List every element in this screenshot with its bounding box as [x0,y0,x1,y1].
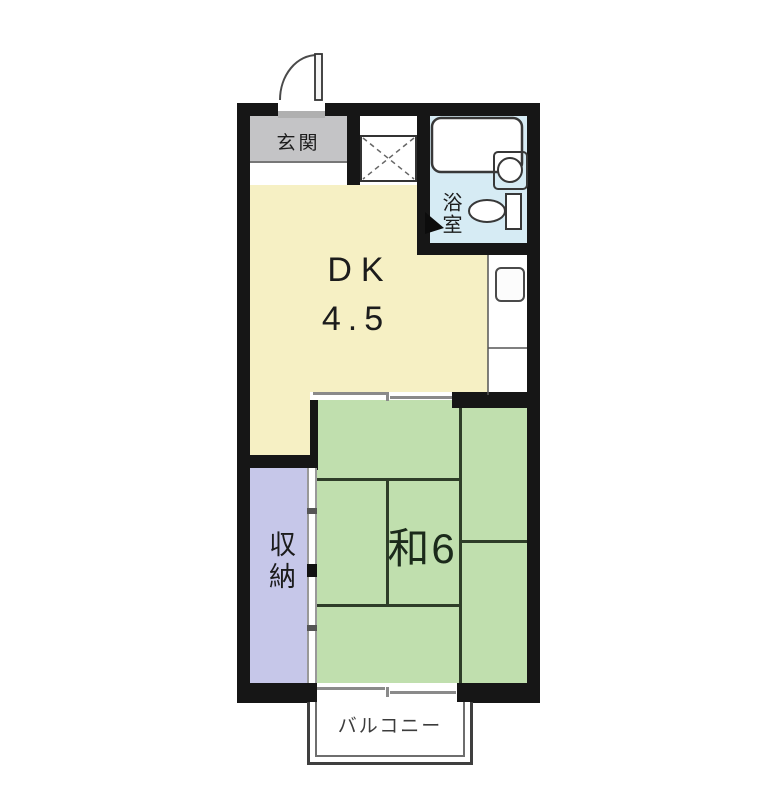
entrance-door-panel [315,54,322,100]
dk-label: DK [300,251,420,290]
floor-plan: 玄関 浴室 DK 4.5 和6 収納 バルコニー [0,0,766,800]
entrance-label: 玄関 [250,128,347,155]
balcony-sliding-door-left [317,687,385,690]
wall-entrance-utility [347,116,360,185]
entrance-threshold [278,111,325,118]
wall-dk-tatami-divider [310,400,318,470]
entrance-door-swing-arc [280,55,317,100]
wall-left [237,103,250,703]
dk-left-column [250,392,310,455]
wall-bathroom-left [417,116,430,243]
wall-storage-top [237,455,313,468]
balcony-sliding-door-right [390,691,456,694]
dk-size-label: 4.5 [288,300,424,339]
storage-door-tick-bottom [307,625,317,631]
dk-tatami-sliding-door-tick [386,392,389,401]
wall-bottom-right [457,683,540,703]
storage-label: 収納 [261,530,300,640]
dk-tatami-sliding-door-right [390,396,452,399]
storage-door-tick-mid [307,564,317,577]
balcony-label: バルコニー [307,711,473,738]
japanese-room-label: 和6 [352,515,492,576]
kitchen-counter [488,255,527,395]
storage-door-tick-top [307,508,317,514]
wall-top-right [325,103,540,116]
tatami-line-horizontal-bottom [313,604,462,607]
balcony-sliding-door-tick [386,687,389,697]
dk-tatami-sliding-door-left [313,392,388,395]
wall-tatami-top [452,392,527,408]
wall-bottom-left [237,683,317,703]
bathroom-label: 浴室 [436,192,465,248]
wall-right [527,103,540,703]
utility-nook [360,116,417,185]
entrance-step [250,163,347,185]
